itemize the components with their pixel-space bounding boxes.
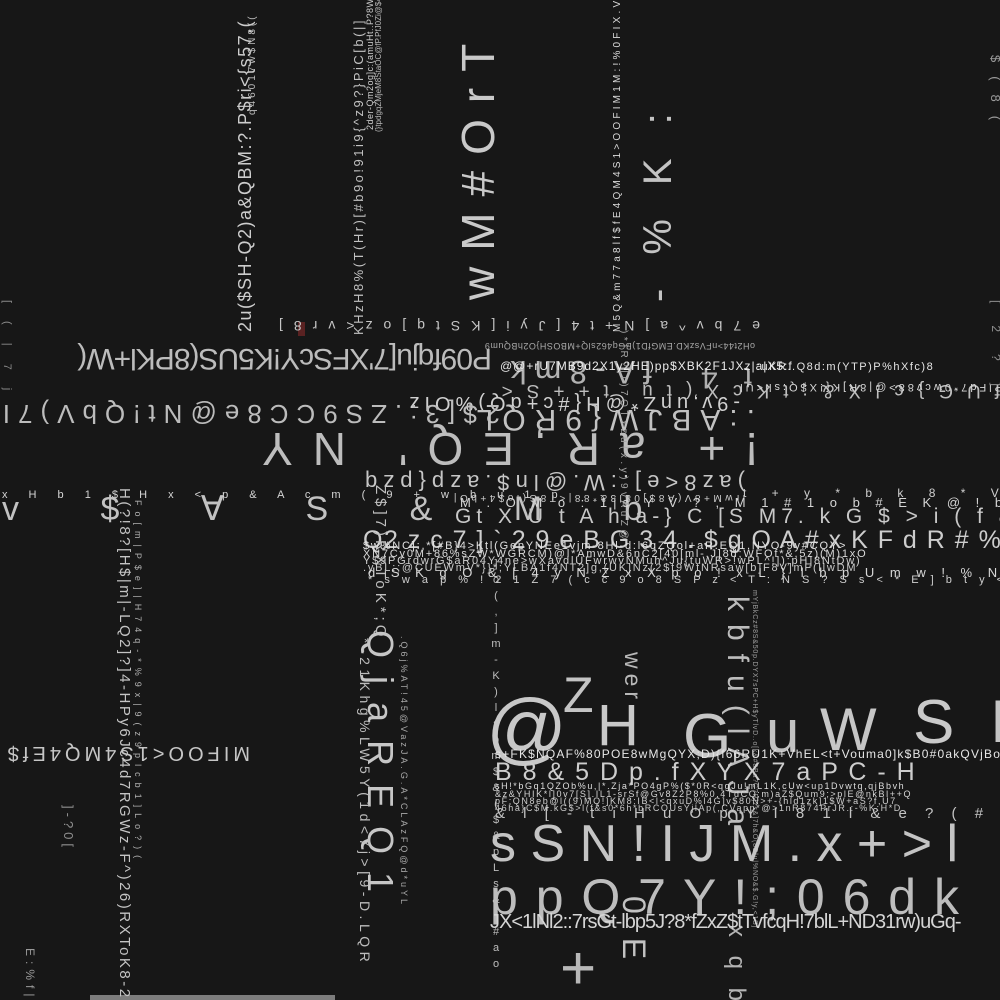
frag-bottom-left: E:%f|	[24, 948, 36, 1000]
col-kpct: -%K:	[638, 79, 678, 302]
row-flip-big-left: P09fqju[7'XFScY!K5US(8PKl+W(	[78, 343, 492, 373]
frag-right-top: $(8(	[989, 55, 1000, 134]
frag-right-mid: [2?]	[990, 300, 1000, 408]
row-flip-giant: !+ aR,EQ' NY	[242, 426, 758, 472]
col-21khg: *-21Khg%LW5Y(1d<7j>[9-D.LQR	[358, 638, 372, 966]
col-left-small: Fo[m|P$e]|H74q-*%9x|9(z9plcb1]Lo?)(	[133, 500, 142, 864]
col-center-tiny: )*]R?|r)7QTxzu(x.y)9vAuZ@	[618, 330, 628, 543]
glyph-Z: Z	[563, 670, 594, 720]
glyph-I: I	[990, 692, 1000, 752]
row-white-code-mid: @@+rU7MB9d2X1y2HE)pp$XBK2F1JXz|a|X5:f	[500, 360, 793, 372]
col-hzh8: KHzH8%(T(Hr)[#b9o!91i9{^z9?}PiC[b(|]	[352, 18, 365, 335]
col-wmort: wM#OrT	[455, 28, 501, 300]
col-q6j: .Q6j%AT!45@VazJA.G.A*CLAzFQ@d*uYL	[399, 636, 408, 907]
row-flip-small-top: e7bv^a]N+t4[Jyi[KStq]oz<vr8]	[268, 319, 760, 333]
col-xqbq: x q b q	[724, 925, 748, 1000]
row-swap: * s w a p % ! 2 1 Z 7 ( c c 9 o 8 S P z …	[368, 575, 1000, 586]
col-zs7: Z$]7)RXToK*;Q	[373, 485, 388, 640]
col-sh-q2-tail: q46017w$N8((	[248, 13, 258, 115]
frag-left-mid: ]-?0[	[62, 805, 75, 851]
glyph-plus-bottom: +	[560, 938, 596, 1000]
glyph-S: S	[913, 692, 954, 754]
col-hzh8-tiny2: (}tpdgqZMjeM8StaOC@fP.PfJ0Zi@$4k$8Hl	[375, 0, 383, 132]
row-white-code-right: :uKR..Q8d:m(YTP)P%hXfc)8	[757, 362, 934, 373]
row-ssn-giant: s S N ! I J M . x + > l	[490, 818, 958, 870]
artwork-canvas: 2u($SH-Q2)a&QBM:?.P$ri<{s57,(q46017w$N8(…	[0, 0, 1000, 1000]
col-oofim: M5Q&m77a8lf$fE4QM4S1>OOFIM1M:!%0FIX.VD	[613, 0, 623, 332]
row-flip-tiny-right: PlFd7*0wcv88>@|8R]K{!X$Q:sk<Ul	[737, 381, 1000, 392]
row-flip-fe4: MIFOO<1S4MQ4Ef$	[4, 743, 250, 763]
row-spaced-gtx: Gt X U t A h a-} C [S M7. k G $ > i ( f …	[455, 506, 1000, 527]
frag-left-edge: [(|7j	[1, 300, 12, 408]
row-jx: JX<1lNl2::7rsGt-lbp5J?8*fZxZ$tTvfcqH!7bl…	[490, 912, 961, 932]
